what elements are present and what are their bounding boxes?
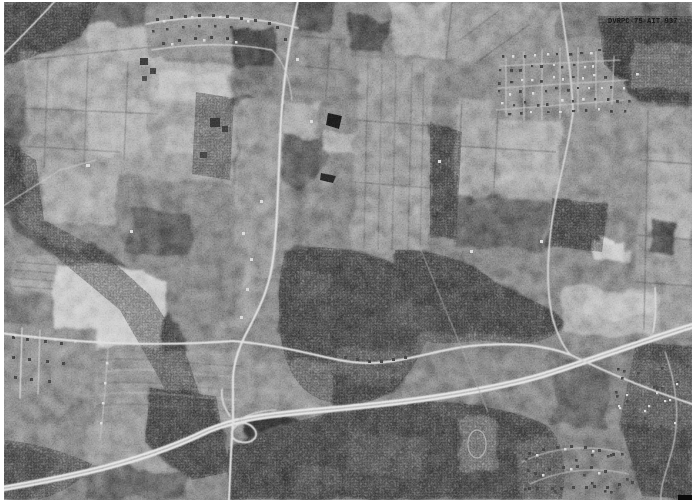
svg-text:DVRPC-75-AIT 937: DVRPC-75-AIT 937 <box>608 18 678 26</box>
